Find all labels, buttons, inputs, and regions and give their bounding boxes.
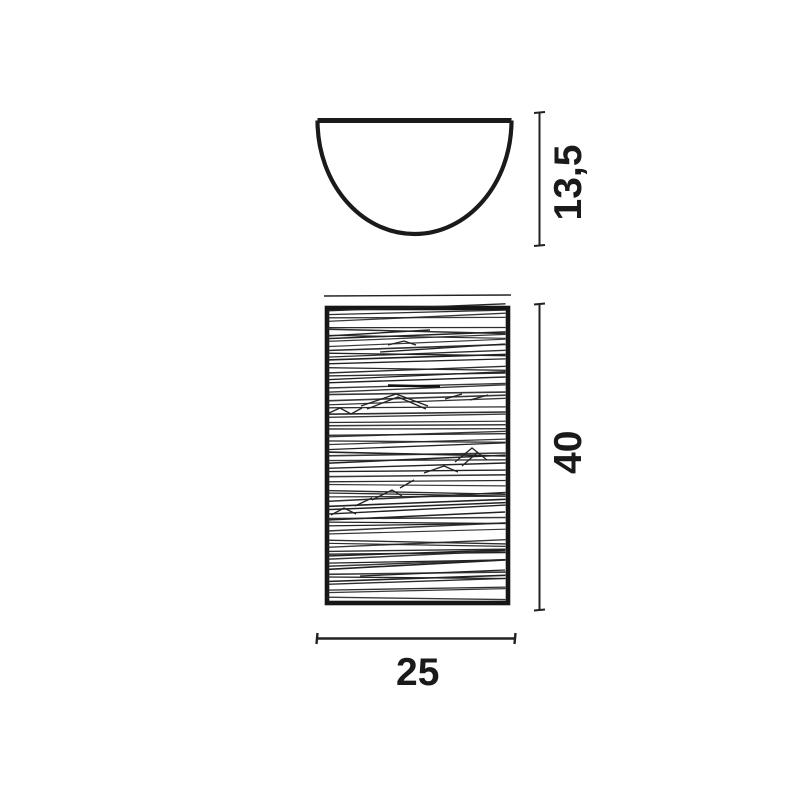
svg-text:40: 40	[547, 431, 590, 474]
svg-text:25: 25	[396, 651, 439, 694]
svg-text:13,5: 13,5	[547, 145, 590, 221]
